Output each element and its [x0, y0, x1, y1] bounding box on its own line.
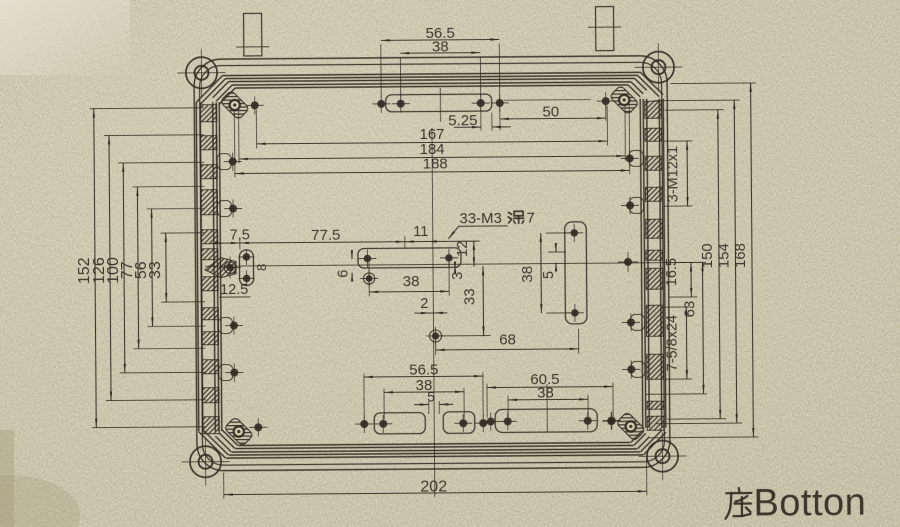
- svg-text:150: 150: [699, 243, 716, 268]
- svg-text:5: 5: [541, 271, 557, 279]
- svg-text:38: 38: [403, 273, 420, 290]
- svg-text:33: 33: [147, 261, 164, 279]
- svg-text:154: 154: [715, 243, 732, 268]
- svg-text:63: 63: [681, 301, 698, 318]
- svg-text:33-M3: 33-M3: [459, 210, 502, 227]
- svg-text:38: 38: [519, 266, 536, 283]
- svg-text:12.5: 12.5: [220, 282, 248, 298]
- svg-text:Botton: Botton: [753, 482, 866, 525]
- svg-text:38: 38: [537, 385, 554, 402]
- svg-text:33: 33: [461, 288, 478, 305]
- svg-text:5.25: 5.25: [448, 112, 477, 129]
- svg-text:38: 38: [432, 38, 449, 55]
- svg-text:8: 8: [254, 264, 269, 271]
- svg-text:7: 7: [526, 210, 534, 227]
- svg-text:3: 3: [450, 272, 466, 280]
- svg-text:188: 188: [423, 155, 448, 172]
- svg-text:50: 50: [542, 103, 559, 120]
- svg-text:202: 202: [420, 478, 447, 495]
- svg-text:11: 11: [413, 224, 428, 240]
- svg-text:168: 168: [732, 243, 749, 268]
- svg-text:7-5/8x24: 7-5/8x24: [664, 315, 680, 372]
- svg-text:6: 6: [336, 270, 352, 278]
- svg-text:77.5: 77.5: [311, 227, 340, 244]
- svg-text:68: 68: [499, 331, 516, 348]
- svg-text:12: 12: [455, 241, 471, 257]
- svg-text:3-M12x1: 3-M12x1: [665, 146, 681, 203]
- svg-text:2: 2: [420, 296, 428, 312]
- svg-text:5: 5: [427, 388, 435, 404]
